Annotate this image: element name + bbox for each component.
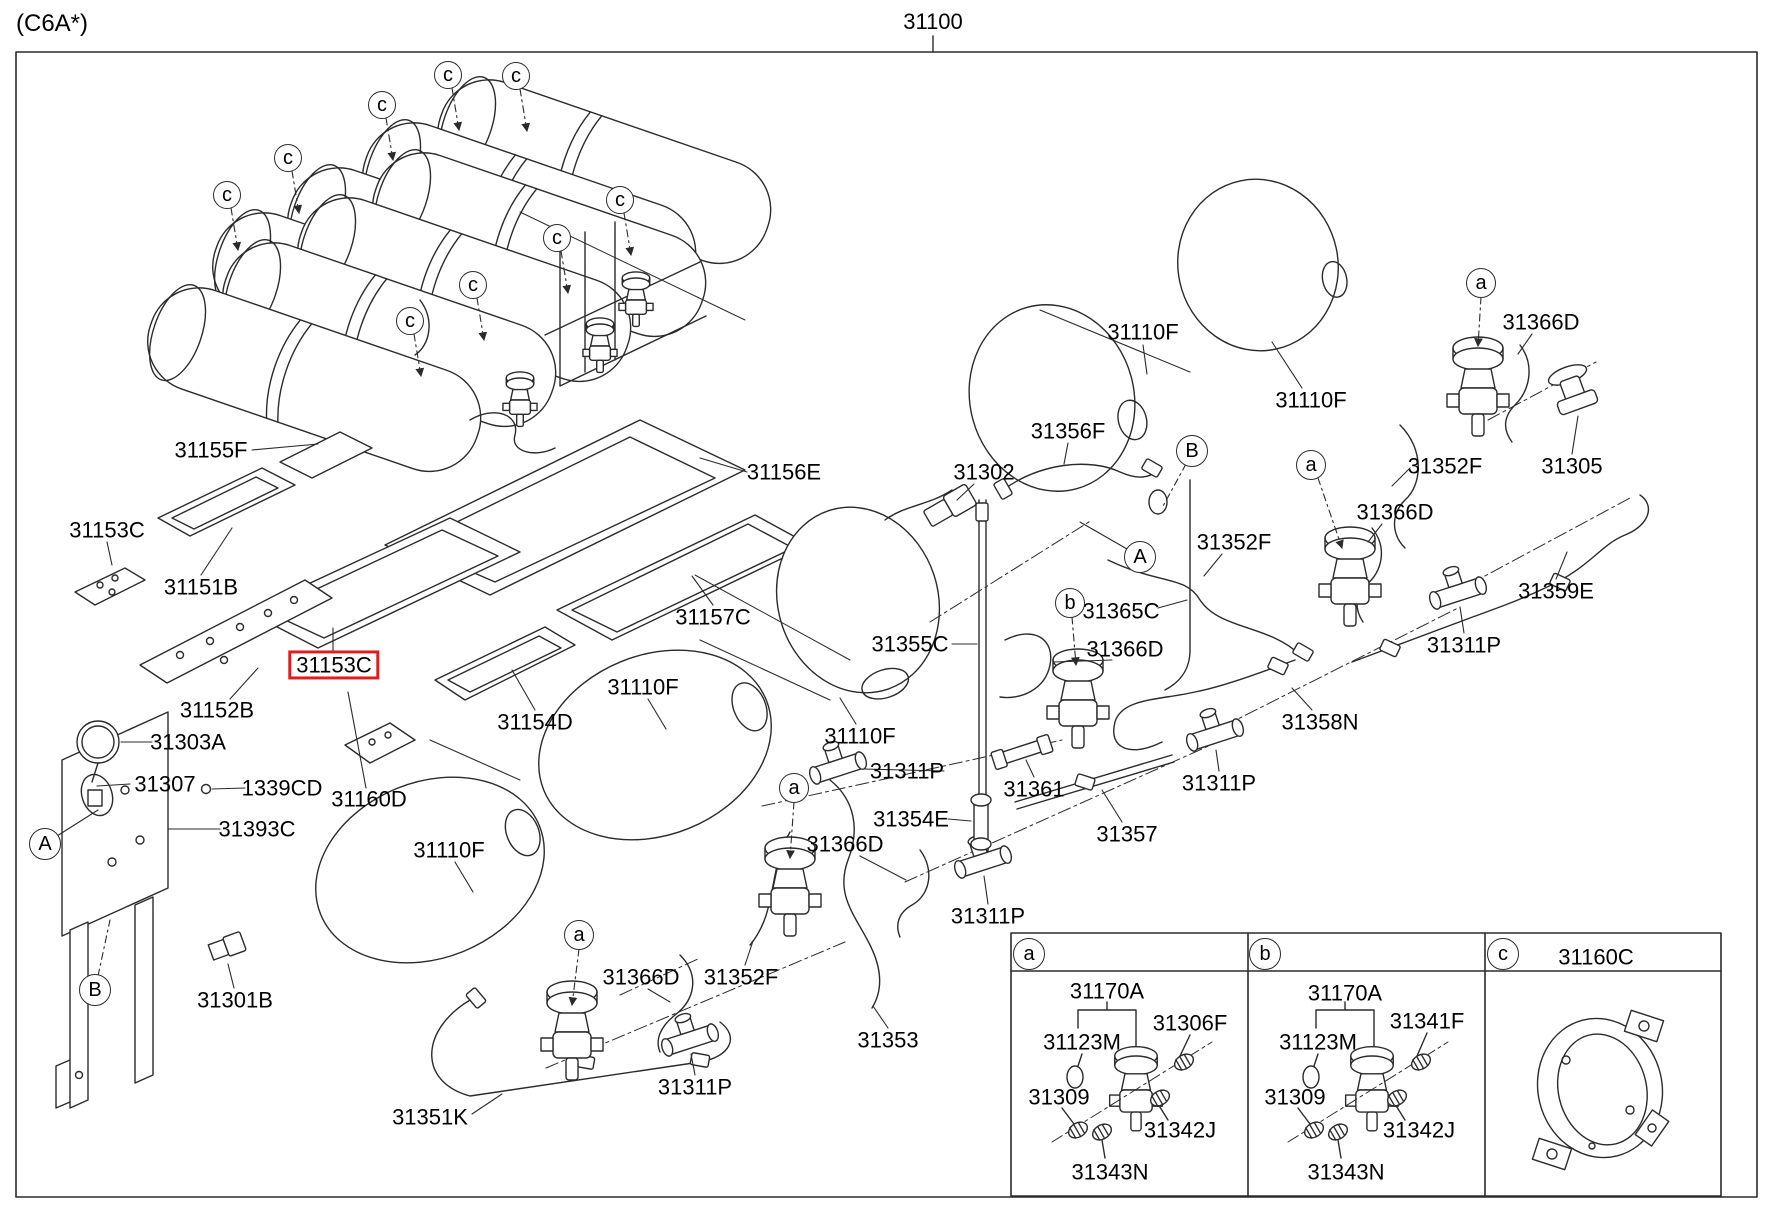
callout-c-circle: c xyxy=(368,91,396,119)
part-label-31343N[interactable]: 31343N xyxy=(1071,1160,1148,1183)
part-label-31153C[interactable]: 31153C xyxy=(69,518,144,541)
part-label-31305[interactable]: 31305 xyxy=(1541,454,1602,477)
part-label-31356F[interactable]: 31356F xyxy=(1031,419,1106,442)
callout-a-circle: a xyxy=(1466,268,1496,298)
callout-B-circle: B xyxy=(79,974,111,1006)
part-label-31358N[interactable]: 31358N xyxy=(1281,710,1358,733)
callout-A-circle: A xyxy=(29,828,61,860)
callout-c-circle: c xyxy=(274,144,302,172)
part-label-31151B[interactable]: 31151B xyxy=(164,575,238,598)
part-label-31170A[interactable]: 31170A xyxy=(1070,979,1144,1002)
part-label-31110F[interactable]: 31110F xyxy=(1107,320,1178,343)
callout-A-leader xyxy=(1080,522,1127,549)
part-label-31311P[interactable]: 31311P xyxy=(1182,771,1256,794)
assembly-number-label[interactable]: 31100 xyxy=(903,9,963,35)
part-label-31123M[interactable]: 31123M xyxy=(1043,1030,1121,1053)
part-label-31309[interactable]: 31309 xyxy=(1028,1085,1089,1108)
tank-cluster xyxy=(134,66,784,485)
callout-c-circle: c xyxy=(434,61,462,89)
part-label-31341F[interactable]: 31341F xyxy=(1390,1009,1465,1032)
parts-diagram-page: (C6A*) 31100 31155F31153C31151B31153C311… xyxy=(0,0,1772,1211)
part-label-31157C[interactable]: 31157C xyxy=(675,605,750,628)
callout-c-circle: c xyxy=(543,224,571,252)
part-label-31352F[interactable]: 31352F xyxy=(1408,454,1483,477)
callout-c-circle: c xyxy=(459,271,487,299)
legend-table xyxy=(1011,933,1721,1196)
part-label-31110F[interactable]: 31110F xyxy=(1275,388,1346,411)
part-label-31366D[interactable]: 31366D xyxy=(1086,637,1163,660)
part-label-31156E[interactable]: 31156E xyxy=(747,460,821,483)
part-label-31110F[interactable]: 31110F xyxy=(824,724,895,747)
part-label-31351K[interactable]: 31351K xyxy=(392,1105,468,1128)
part-label-31311P[interactable]: 31311P xyxy=(658,1075,732,1098)
part-label-31352F[interactable]: 31352F xyxy=(1197,530,1272,553)
part-label-31311P[interactable]: 31311P xyxy=(1427,633,1501,656)
part-label-31311P[interactable]: 31311P xyxy=(951,904,1025,927)
part-label-31354E[interactable]: 31354E xyxy=(873,807,949,830)
callout-B-leader xyxy=(98,920,110,976)
part-label-31309[interactable]: 31309 xyxy=(1264,1085,1325,1108)
part-label-1339CD[interactable]: 1339CD xyxy=(242,776,323,799)
part-label-31355C[interactable]: 31355C xyxy=(871,632,948,655)
callout-a-circle: a xyxy=(1013,938,1045,970)
part-label-31359E[interactable]: 31359E xyxy=(1518,579,1594,602)
part-label-31160C[interactable]: 31160C xyxy=(1558,945,1633,968)
part-label-31154D[interactable]: 31154D xyxy=(497,710,572,733)
callout-a-circle: a xyxy=(1296,450,1326,480)
callout-a-circle: a xyxy=(779,773,809,803)
callout-c-circle: c xyxy=(1487,938,1519,970)
part-label-31153C-highlighted[interactable]: 31153C xyxy=(288,650,379,679)
part-label-31301B[interactable]: 31301B xyxy=(197,988,273,1011)
variant-code-label: (C6A*) xyxy=(16,10,88,38)
part-label-31352F[interactable]: 31352F xyxy=(704,965,779,988)
callout-b-circle: b xyxy=(1055,588,1085,618)
part-label-31123M[interactable]: 31123M xyxy=(1279,1030,1357,1053)
part-label-31160D[interactable]: 31160D xyxy=(331,787,406,810)
callout-c-circle: c xyxy=(502,62,530,90)
part-label-31342J[interactable]: 31342J xyxy=(1383,1118,1455,1141)
part-label-31353[interactable]: 31353 xyxy=(857,1028,918,1051)
part-label-31110F[interactable]: 31110F xyxy=(607,675,678,698)
part-label-31366D[interactable]: 31366D xyxy=(602,965,679,988)
part-label-31366D[interactable]: 31366D xyxy=(1356,500,1433,523)
part-label-31361[interactable]: 31361 xyxy=(1003,777,1064,800)
callout-c-circle: c xyxy=(213,181,241,209)
part-label-31303A[interactable]: 31303A xyxy=(150,730,226,753)
callout-c-circle: c xyxy=(396,307,424,335)
part-label-31170A[interactable]: 31170A xyxy=(1308,981,1382,1004)
part-label-31307[interactable]: 31307 xyxy=(134,772,195,795)
callout-B-circle: B xyxy=(1176,435,1208,467)
part-label-31343N[interactable]: 31343N xyxy=(1307,1160,1384,1183)
callout-c-circle: c xyxy=(606,186,634,214)
part-label-31342J[interactable]: 31342J xyxy=(1144,1118,1216,1141)
part-label-31110F[interactable]: 31110F xyxy=(413,838,484,861)
callout-A-circle: A xyxy=(1124,541,1156,573)
callout-a-circle: a xyxy=(564,920,594,950)
part-label-31306F[interactable]: 31306F xyxy=(1153,1011,1228,1034)
part-label-31357[interactable]: 31357 xyxy=(1096,822,1157,845)
part-label-31302[interactable]: 31302 xyxy=(953,460,1014,483)
part-label-31393C[interactable]: 31393C xyxy=(218,817,295,840)
part-label-31311P[interactable]: 31311P xyxy=(870,759,944,782)
callout-b-circle: b xyxy=(1249,938,1281,970)
part-label-31366D[interactable]: 31366D xyxy=(1502,310,1579,333)
part-label-31366D[interactable]: 31366D xyxy=(806,832,883,855)
part-label-31152B[interactable]: 31152B xyxy=(180,698,254,721)
part-label-31365C[interactable]: 31365C xyxy=(1082,599,1159,622)
part-label-31155F[interactable]: 31155F xyxy=(175,438,248,461)
